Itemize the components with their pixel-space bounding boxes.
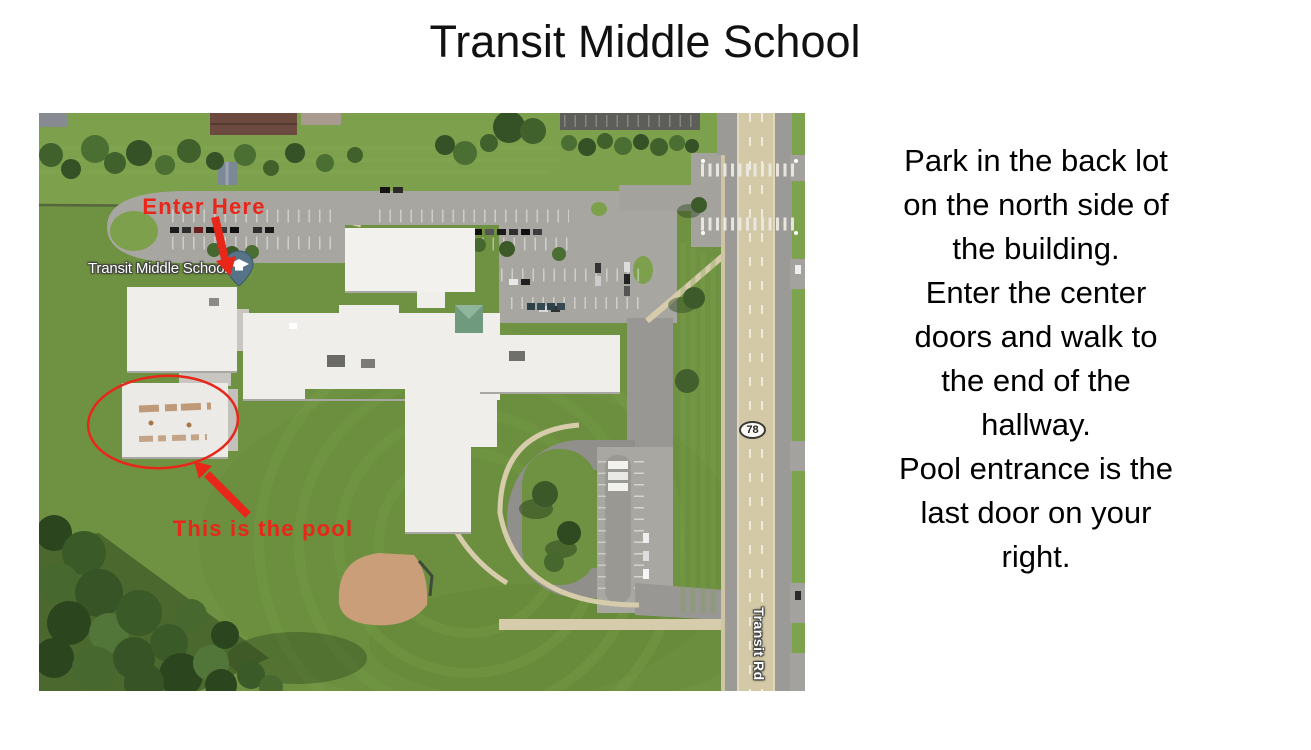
map-place-label: Transit Middle School xyxy=(88,260,227,277)
page-title: Transit Middle School xyxy=(0,16,1290,68)
driveway xyxy=(627,318,673,453)
baseball-diamond xyxy=(339,553,427,625)
paragraph-parking: Park in the back lot on the north side o… xyxy=(850,139,1222,271)
road-name-label: Transit Rd xyxy=(747,602,767,686)
paragraph-pool: Pool entrance is the last door on your r… xyxy=(850,447,1222,579)
enter-here-callout: Enter Here xyxy=(128,194,280,220)
north-wing xyxy=(345,228,475,292)
pool-callout: This is the pool xyxy=(170,516,356,542)
satellite-map: Transit Middle School 78 Transit Rd Ente… xyxy=(39,113,805,691)
west-wing xyxy=(127,287,237,372)
paragraph-entrance: Enter the center doors and walk to the e… xyxy=(850,271,1222,447)
slide: { "slide": { "title": "Transit Middle Sc… xyxy=(0,0,1311,750)
neighbor-parking-lot xyxy=(560,113,700,130)
route-78-shield: 78 xyxy=(739,421,766,439)
directions-text: Park in the back lot on the north side o… xyxy=(850,139,1222,579)
east-wing xyxy=(480,335,620,393)
pool-building xyxy=(122,383,228,458)
